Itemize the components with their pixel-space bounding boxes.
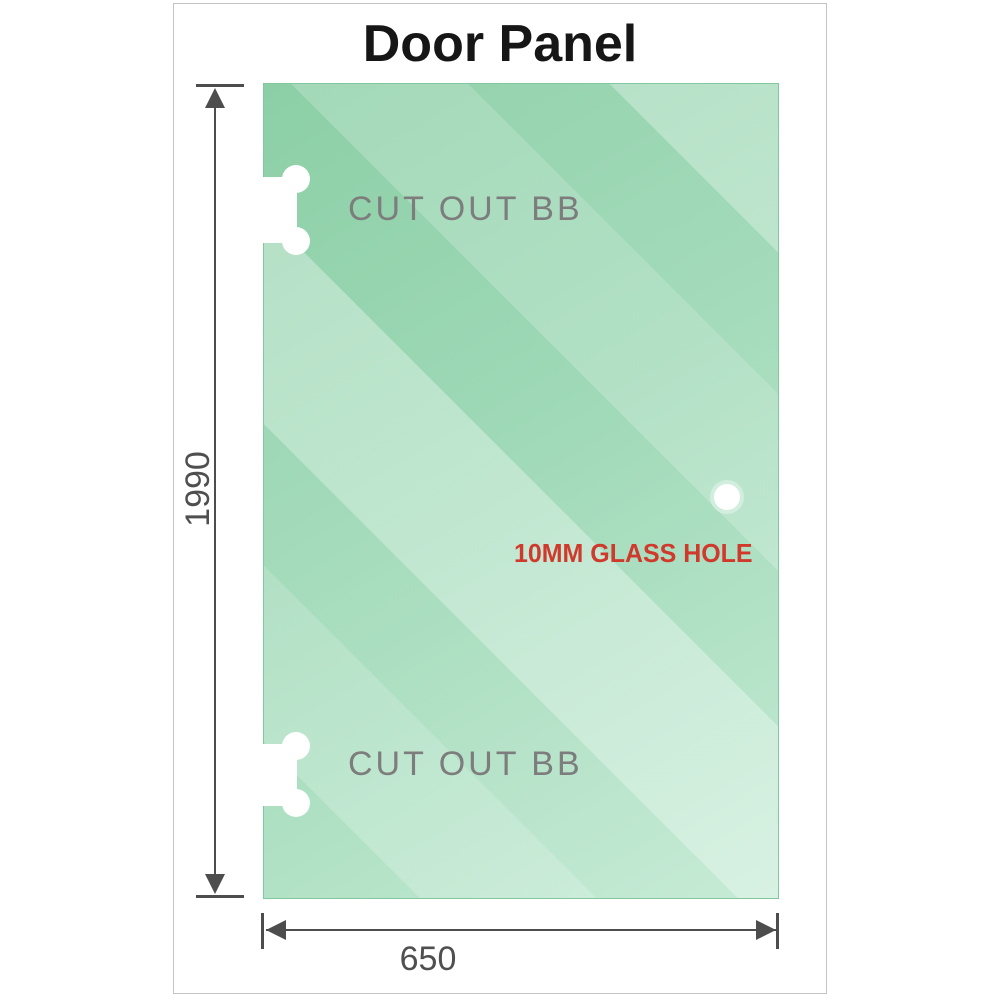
width-dimension-tick-left	[261, 913, 264, 949]
hinge-cutout-bottom-lobe-lower	[282, 789, 310, 817]
hinge-cutout-bottom-lobe-upper	[282, 732, 310, 760]
height-dimension-value: 1990	[179, 429, 215, 549]
hinge-cutout-top-lobe-upper	[282, 165, 310, 193]
width-dimension-tick-right	[776, 913, 779, 949]
cutout-label-bottom: CUT OUT BB	[348, 745, 583, 784]
cutout-label-top: CUT OUT BB	[348, 190, 583, 229]
arrow-down-icon	[205, 874, 225, 894]
hinge-cutout-top-lobe-lower	[282, 227, 310, 255]
glass-hole	[714, 484, 740, 510]
glass-hole-label: 10MM GLASS HOLE	[514, 538, 753, 569]
page-title: Door Panel	[173, 14, 827, 74]
arrow-right-icon	[756, 920, 776, 940]
height-dimension-tick-bottom	[196, 895, 244, 898]
width-dimension-value: 650	[385, 940, 471, 979]
height-dimension-tick-top	[196, 84, 244, 87]
width-dimension-line	[266, 929, 776, 931]
arrow-left-icon	[266, 920, 286, 940]
arrow-up-icon	[205, 88, 225, 108]
